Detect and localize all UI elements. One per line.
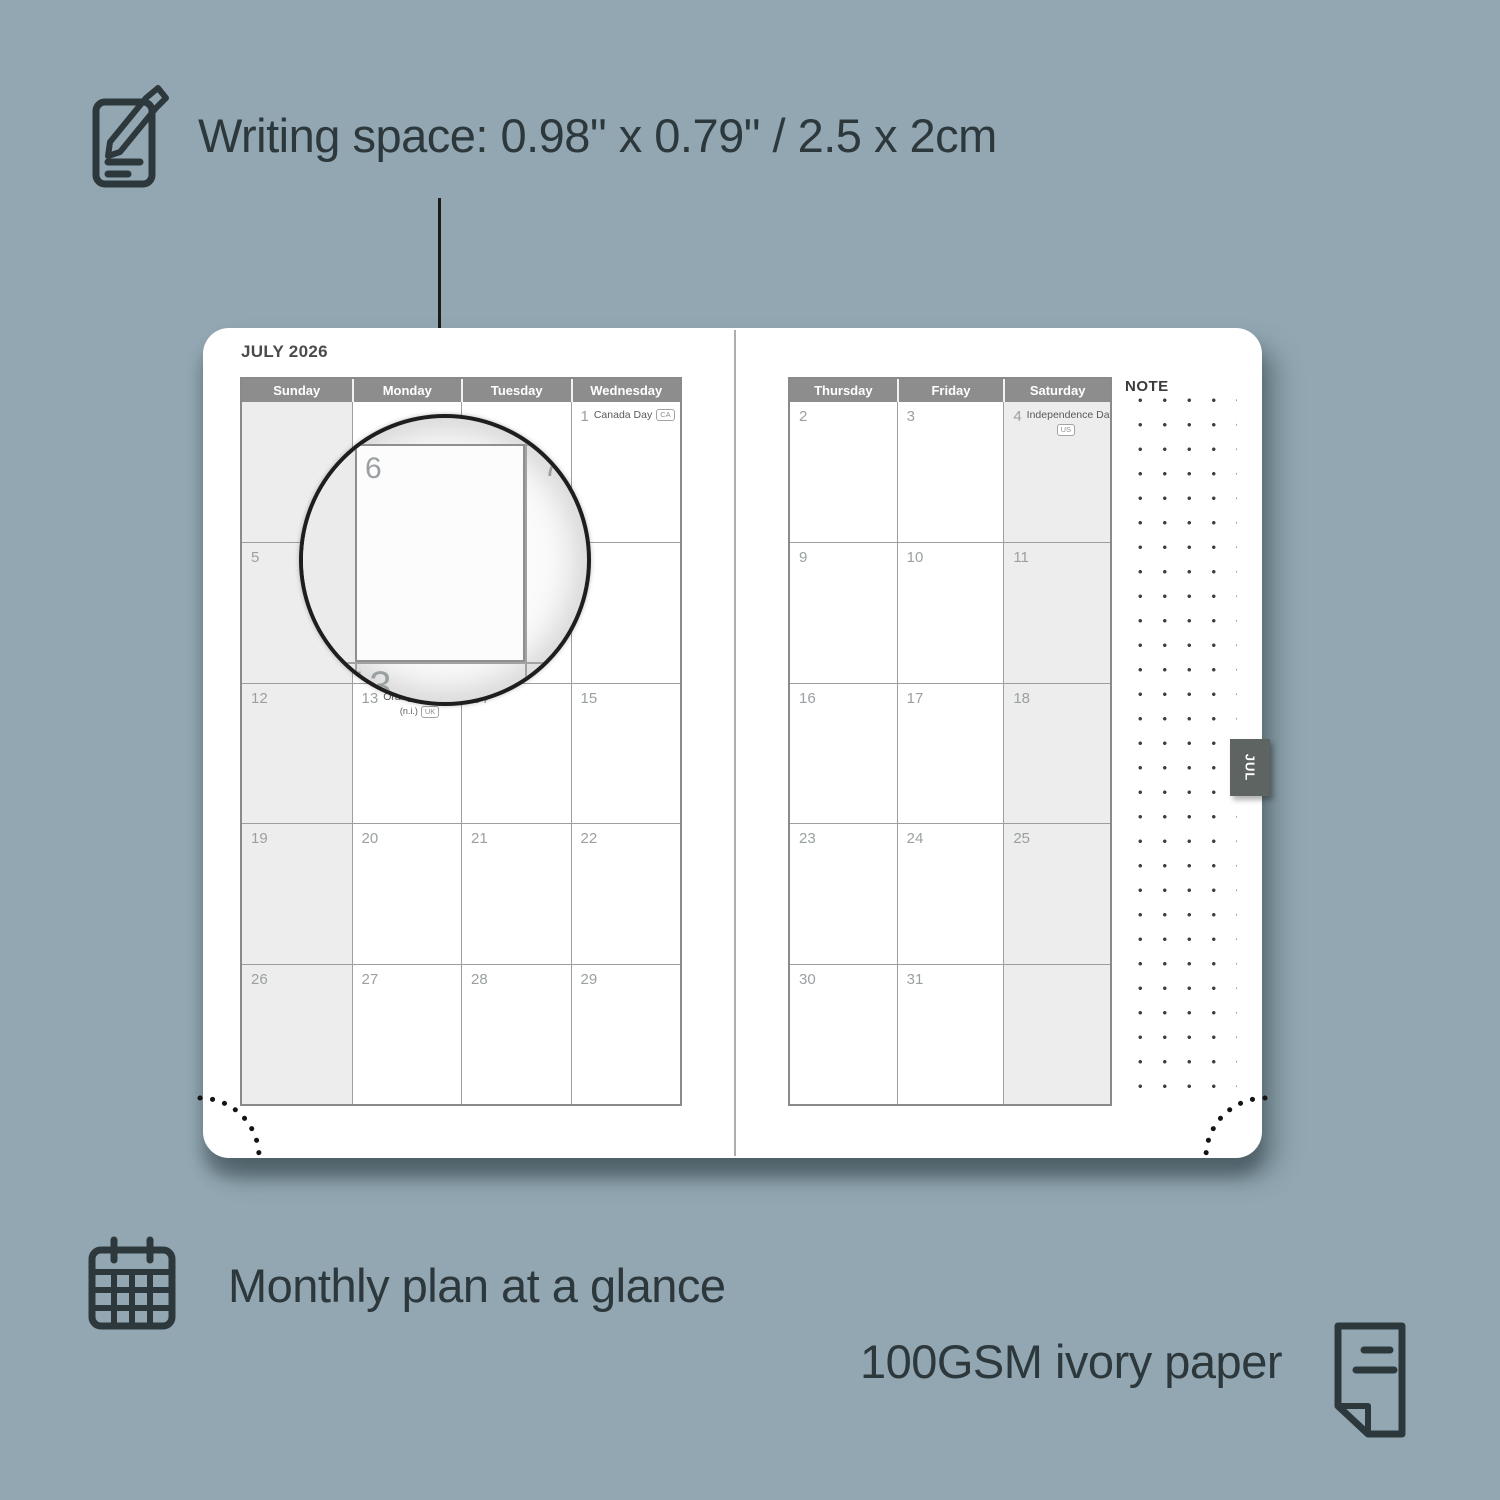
magnified-date: 6 xyxy=(365,452,382,486)
date-number: 22 xyxy=(581,831,598,846)
calendar-cell: 15 xyxy=(571,683,681,823)
calendar-grid: 234Independence DayUS9101116171823242530… xyxy=(790,402,1110,1104)
date-number: 10 xyxy=(907,550,924,565)
magnified-date: 7 xyxy=(543,450,560,484)
paper-callout: 100GSM ivory paper xyxy=(860,1334,1282,1389)
note-dot-grid xyxy=(1123,382,1237,1104)
calendar-cell: 2 xyxy=(790,402,897,542)
date-number: 26 xyxy=(251,972,268,987)
page-seam xyxy=(734,330,736,1156)
calendar-cell: 29 xyxy=(571,964,681,1104)
stitch-arc-left xyxy=(197,1094,263,1160)
day-header-monday: Monday xyxy=(352,379,462,402)
calendar-cell: 31 xyxy=(897,964,1004,1104)
date-number: 17 xyxy=(907,691,924,706)
date-number: 21 xyxy=(471,831,488,846)
magnifier-circle: 6 7 13 xyxy=(299,414,591,706)
date-number: 11 xyxy=(1013,550,1029,565)
magnified-grid-line xyxy=(525,418,527,702)
stitch-arc-right xyxy=(1202,1094,1268,1160)
country-badge: US xyxy=(1057,424,1075,436)
month-tab-label: JUL xyxy=(1243,754,1258,782)
country-badge: CA xyxy=(656,409,674,421)
date-number: 28 xyxy=(471,972,488,987)
holiday-label: Canada DayCA xyxy=(594,409,675,421)
calendar-cell: 23 xyxy=(790,823,897,963)
monthly-plan-callout: Monthly plan at a glance xyxy=(228,1258,726,1313)
day-header-friday: Friday xyxy=(897,379,1004,402)
calendar-cell: 25 xyxy=(1003,823,1110,963)
day-header-row: SundayMondayTuesdayWednesday xyxy=(242,379,680,402)
calendar-cell xyxy=(1003,964,1110,1104)
date-number: 12 xyxy=(251,691,268,706)
calendar-cell: 17 xyxy=(897,683,1004,823)
day-header-sunday: Sunday xyxy=(242,379,352,402)
note-label: NOTE xyxy=(1125,378,1179,398)
date-number: 4 xyxy=(1013,409,1021,424)
calendar-cell: 27 xyxy=(352,964,462,1104)
calendar-cell: 24 xyxy=(897,823,1004,963)
date-number: 2 xyxy=(799,409,807,424)
day-header-thursday: Thursday xyxy=(790,379,897,402)
date-number: 23 xyxy=(799,831,816,846)
date-number: 24 xyxy=(907,831,924,846)
notepad-pencil-icon xyxy=(88,80,176,192)
calendar-cell: 14 xyxy=(461,683,571,823)
calendar-cell: 11 xyxy=(1003,542,1110,682)
magnified-weekend-band xyxy=(303,418,355,702)
calendar-cell: 21 xyxy=(461,823,571,963)
date-number: 3 xyxy=(907,409,915,424)
month-title: JULY 2026 xyxy=(241,342,328,362)
date-number: 27 xyxy=(362,972,379,987)
calendar-cell: 30 xyxy=(790,964,897,1104)
date-number: 20 xyxy=(362,831,379,846)
date-number: 5 xyxy=(251,550,259,565)
calendar-cell: 3 xyxy=(897,402,1004,542)
day-header-tuesday: Tuesday xyxy=(461,379,571,402)
calendar-cell: 1Canada DayCA xyxy=(571,402,681,542)
calendar-cell: 16 xyxy=(790,683,897,823)
date-number: 1 xyxy=(581,409,589,424)
calendar-cell: 12 xyxy=(242,683,352,823)
date-number: 9 xyxy=(799,550,807,565)
date-number: 25 xyxy=(1013,831,1030,846)
calendar-cell: 19 xyxy=(242,823,352,963)
magnified-grid-line xyxy=(303,662,587,664)
calendar-right-page: ThursdayFridaySaturday 234Independence D… xyxy=(788,377,1112,1106)
calendar-cell: 9 xyxy=(790,542,897,682)
date-number: 18 xyxy=(1013,691,1030,706)
month-tab-jul: JUL xyxy=(1230,739,1270,796)
calendar-cell: 28 xyxy=(461,964,571,1104)
paper-sheet-icon xyxy=(1324,1318,1416,1442)
calendar-cell: 26 xyxy=(242,964,352,1104)
writing-space-callout: Writing space: 0.98" x 0.79" / 2.5 x 2cm xyxy=(198,108,997,163)
date-number: 16 xyxy=(799,691,816,706)
calendar-cell: 20 xyxy=(352,823,462,963)
holiday-label: Independence DayUS xyxy=(1027,409,1105,436)
day-header-saturday: Saturday xyxy=(1003,379,1110,402)
date-number: 30 xyxy=(799,972,816,987)
calendar-grid-icon xyxy=(84,1236,180,1334)
day-header-wednesday: Wednesday xyxy=(571,379,681,402)
date-number: 15 xyxy=(581,691,598,706)
date-number: 29 xyxy=(581,972,598,987)
country-badge: UK xyxy=(421,706,439,718)
calendar-cell: 10 xyxy=(897,542,1004,682)
product-image-canvas: Writing space: 0.98" x 0.79" / 2.5 x 2cm… xyxy=(0,0,1500,1500)
date-number: 19 xyxy=(251,831,268,846)
calendar-cell: 4Independence DayUS xyxy=(1003,402,1110,542)
date-number: 31 xyxy=(907,972,924,987)
calendar-cell: 22 xyxy=(571,823,681,963)
day-header-row: ThursdayFridaySaturday xyxy=(790,379,1110,402)
calendar-cell: 18 xyxy=(1003,683,1110,823)
magnified-date: 13 xyxy=(347,664,392,706)
